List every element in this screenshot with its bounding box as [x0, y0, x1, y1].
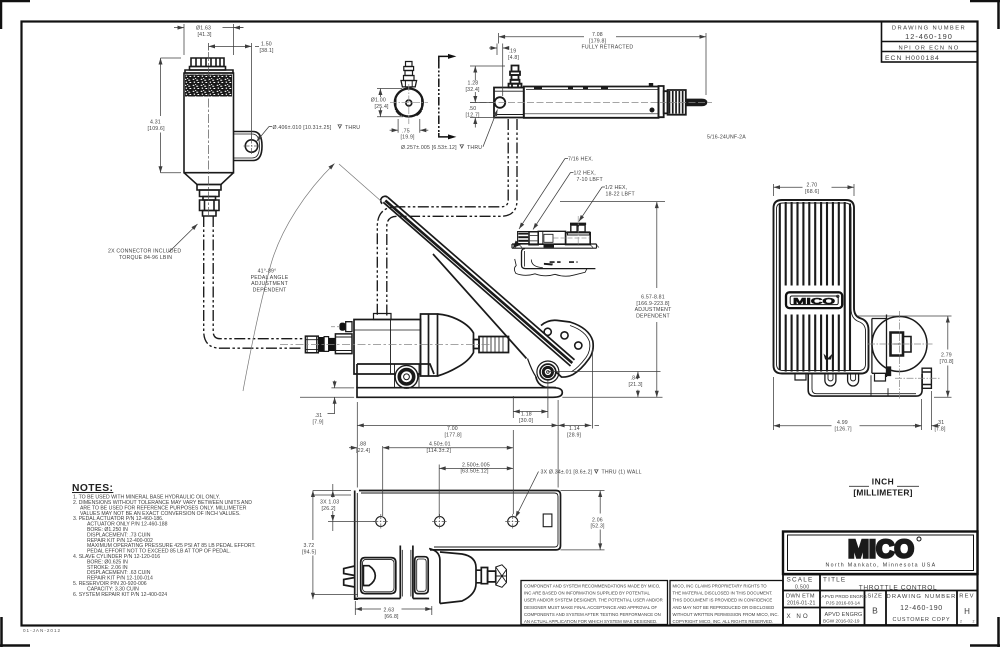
svg-text:[30.0]: [30.0]	[519, 418, 534, 424]
svg-text:THIS DOCUMENT IS PROVIDED IN C: THIS DOCUMENT IS PROVIDED IN CONFIDENCE	[673, 598, 773, 603]
svg-text:.31: .31	[937, 420, 945, 426]
svg-text:2.79: 2.79	[941, 353, 952, 359]
svg-text:.19: .19	[509, 49, 517, 55]
svg-text:3.72: 3.72	[304, 543, 315, 549]
svg-text:AN ACTUAL APPLICATION FOR WHIC: AN ACTUAL APPLICATION FOR WHICH SYSTEM W…	[524, 619, 657, 624]
svg-text:.88: .88	[359, 442, 367, 448]
svg-text:7-10 LBFT: 7-10 LBFT	[577, 177, 604, 183]
svg-text:4.50±.01: 4.50±.01	[429, 442, 451, 448]
svg-text:2: 2	[973, 620, 975, 624]
svg-text:01-JAN-2012: 01-JAN-2012	[23, 628, 61, 633]
svg-text:1.28: 1.28	[468, 81, 479, 87]
svg-text:[52.3]: [52.3]	[591, 524, 606, 530]
svg-text:[70.8]: [70.8]	[940, 359, 955, 365]
svg-text:[126.7]: [126.7]	[835, 427, 853, 433]
svg-text:B: B	[872, 606, 878, 616]
svg-text:2.63: 2.63	[384, 607, 395, 613]
svg-text:.31: .31	[315, 413, 323, 419]
svg-text:7.08: 7.08	[592, 32, 603, 38]
svg-text:COMPONENT AND SYSTEM RECOMMEND: COMPONENT AND SYSTEM RECOMMENDATIONS MAD…	[524, 584, 660, 589]
svg-text:[28.9]: [28.9]	[567, 433, 582, 439]
svg-text:APVD ENGRG: APVD ENGRG	[825, 612, 863, 618]
svg-text:[12.7]: [12.7]	[466, 112, 481, 118]
svg-text:[177.8]: [177.8]	[445, 433, 463, 439]
svg-text:AND MAY NOT BE REPRODUCED OR D: AND MAY NOT BE REPRODUCED OR DISCLOSED	[673, 605, 775, 610]
svg-text:[7.8]: [7.8]	[935, 427, 946, 433]
svg-text:[68.6]: [68.6]	[805, 189, 820, 195]
svg-text:3X Ø.34±.01 [8.6±.2]: 3X Ø.34±.01 [8.6±.2]	[541, 470, 593, 476]
svg-text:SCALE: SCALE	[787, 577, 814, 584]
svg-text:MICO, INC CLAIMS PROPRIETARY R: MICO, INC CLAIMS PROPRIETARY RIGHTS TO	[673, 584, 768, 589]
svg-text:H: H	[964, 607, 970, 616]
svg-text:North Mankato, Minnesota USA: North Mankato, Minnesota USA	[826, 562, 937, 568]
svg-text:THROTTLE CONTROL: THROTTLE CONTROL	[859, 584, 937, 591]
svg-text:12-460-190: 12-460-190	[905, 32, 953, 41]
svg-text:[22.4]: [22.4]	[356, 448, 371, 454]
svg-text:MICO: MICO	[793, 296, 836, 306]
svg-text:2.500±.005: 2.500±.005	[462, 462, 490, 468]
svg-text:[26.2]: [26.2]	[322, 506, 337, 512]
svg-text:NPI OR ECN NO: NPI OR ECN NO	[898, 45, 959, 51]
svg-text:Ø.406±.010 [10.31±.25]: Ø.406±.010 [10.31±.25]	[273, 125, 332, 131]
svg-text:2.06: 2.06	[592, 517, 603, 523]
svg-text:FULLY RETRACTED: FULLY RETRACTED	[582, 45, 634, 51]
svg-text:Ø1.63: Ø1.63	[196, 26, 211, 32]
svg-text:[109.6]: [109.6]	[148, 126, 166, 132]
svg-text:5/16-24UNF-2A: 5/16-24UNF-2A	[707, 135, 746, 141]
svg-text:2: 2	[960, 620, 962, 624]
svg-text:6.57-8.81: 6.57-8.81	[641, 295, 665, 301]
svg-text:MICO: MICO	[848, 536, 914, 564]
svg-text:[21.3]: [21.3]	[629, 382, 644, 388]
svg-text:TORQUE 84-96 LBIN: TORQUE 84-96 LBIN	[119, 255, 172, 261]
svg-text:1/2 HEX,: 1/2 HEX,	[605, 185, 627, 191]
svg-text:6. SYSTEM REPAIR KIT P/N 12-40: 6. SYSTEM REPAIR KIT P/N 12-400-024	[73, 592, 167, 598]
svg-text:1.14: 1.14	[569, 426, 580, 432]
svg-text:[32.4]: [32.4]	[466, 87, 481, 93]
svg-text:[166.9-223.8]: [166.9-223.8]	[636, 301, 670, 307]
svg-text:1.50: 1.50	[261, 41, 272, 47]
svg-text:41°-89°: 41°-89°	[258, 269, 277, 275]
svg-text:COPYRIGHT MICO, INC. ALL RIGH: COPYRIGHT MICO, INC. ALL RIGHTS RESERVED…	[673, 619, 774, 624]
svg-text:.50: .50	[469, 106, 477, 112]
svg-text:DESIGNER MUST MAKE FINAL ACCEP: DESIGNER MUST MAKE FINAL ACCEPTANCE AND …	[524, 605, 658, 610]
svg-text:NOTES:: NOTES:	[72, 483, 113, 494]
svg-text:7/16 HEX.: 7/16 HEX.	[568, 157, 593, 163]
svg-text:DRAWING NUMBER: DRAWING NUMBER	[887, 594, 957, 600]
svg-text:X NO: X NO	[787, 613, 810, 620]
svg-text:0.500: 0.500	[795, 585, 810, 591]
svg-text:CUSTOMER COPY: CUSTOMER COPY	[893, 617, 951, 623]
svg-text:SIZE: SIZE	[867, 594, 882, 600]
svg-text:7.00: 7.00	[447, 426, 458, 432]
svg-text:[41.3]: [41.3]	[198, 32, 213, 38]
svg-text:[179.8]: [179.8]	[589, 38, 607, 44]
svg-text:DWN ETM: DWN ETM	[786, 594, 815, 600]
svg-text:1.18: 1.18	[521, 412, 532, 418]
svg-text:.84: .84	[631, 376, 639, 382]
svg-text:1/2 HEX,: 1/2 HEX,	[574, 171, 596, 177]
svg-text:[4.8]: [4.8]	[508, 55, 519, 61]
svg-text:3X 1.03: 3X 1.03	[320, 500, 339, 506]
svg-text:DEPENDENT: DEPENDENT	[636, 313, 670, 319]
svg-text:APVD PROD ENGRG: APVD PROD ENGRG	[822, 594, 868, 599]
svg-text:18-22 LBFT: 18-22 LBFT	[606, 191, 636, 197]
svg-text:[63.50±.12]: [63.50±.12]	[461, 469, 489, 475]
svg-text:[7.9]: [7.9]	[313, 419, 324, 425]
svg-text:2016-01-21: 2016-01-21	[787, 601, 816, 607]
svg-text:Ø1.00: Ø1.00	[371, 98, 386, 104]
svg-text:4.31: 4.31	[150, 120, 161, 126]
svg-text:PEDAL ANGLE: PEDAL ANGLE	[251, 275, 289, 281]
svg-text:Ø.257±.005 [6.53±.12]: Ø.257±.005 [6.53±.12]	[401, 145, 457, 151]
svg-text:COMPONENTS AND SYSTEM AFTER TE: COMPONENTS AND SYSTEM AFTER TESTING PERF…	[524, 612, 661, 617]
svg-text:REV: REV	[959, 594, 975, 600]
svg-text:INC ARE BASED ON INFORMATION S: INC ARE BASED ON INFORMATION SUPPLIED BY…	[524, 591, 651, 596]
svg-text:THRU: THRU	[467, 145, 482, 151]
svg-text:THRU: THRU	[345, 125, 360, 131]
svg-text:4.99: 4.99	[837, 420, 848, 426]
svg-text:THE MATERIAL DISCLOSED IN THIS: THE MATERIAL DISCLOSED IN THIS DOCUMENT.	[673, 591, 773, 596]
svg-text:DRAWING NUMBER: DRAWING NUMBER	[892, 26, 966, 32]
svg-text:12-460-190: 12-460-190	[900, 605, 943, 612]
svg-text:DEPENDENT: DEPENDENT	[253, 287, 287, 293]
svg-text:TITLE: TITLE	[823, 577, 846, 584]
svg-text:USER AND/OR SYSTEM DESIGNER.: USER AND/OR SYSTEM DESIGNER. THE POTENTI…	[524, 598, 663, 603]
svg-text:[114.3±.2]: [114.3±.2]	[427, 448, 452, 454]
svg-text:ADJUSTMENT: ADJUSTMENT	[635, 307, 673, 313]
svg-text:BGW 2016-02-19: BGW 2016-02-19	[823, 618, 860, 623]
svg-text:PJS 2016-03-14: PJS 2016-03-14	[826, 600, 860, 605]
svg-text:ADJUSTMENT: ADJUSTMENT	[251, 281, 289, 287]
svg-text:[25.4]: [25.4]	[375, 104, 390, 110]
svg-text:ECN H000184: ECN H000184	[885, 55, 940, 62]
svg-text:2.70: 2.70	[807, 183, 818, 189]
svg-text:2X CONNECTOR INCLUDED: 2X CONNECTOR INCLUDED	[108, 249, 181, 255]
svg-text:WITHOUT WRITTEN PERMISSION FRO: WITHOUT WRITTEN PERMISSION FROM MICO, IN…	[673, 612, 779, 617]
svg-text:[94.5]: [94.5]	[302, 549, 317, 555]
svg-text:[38.1]: [38.1]	[260, 48, 275, 54]
svg-text:[66.8]: [66.8]	[385, 614, 400, 620]
svg-text:[19.9]: [19.9]	[401, 134, 416, 140]
svg-text:[MILLIMETER]: [MILLIMETER]	[853, 488, 912, 498]
svg-text:INCH: INCH	[872, 477, 894, 487]
svg-text:THRU (1) WALL: THRU (1) WALL	[602, 470, 642, 476]
